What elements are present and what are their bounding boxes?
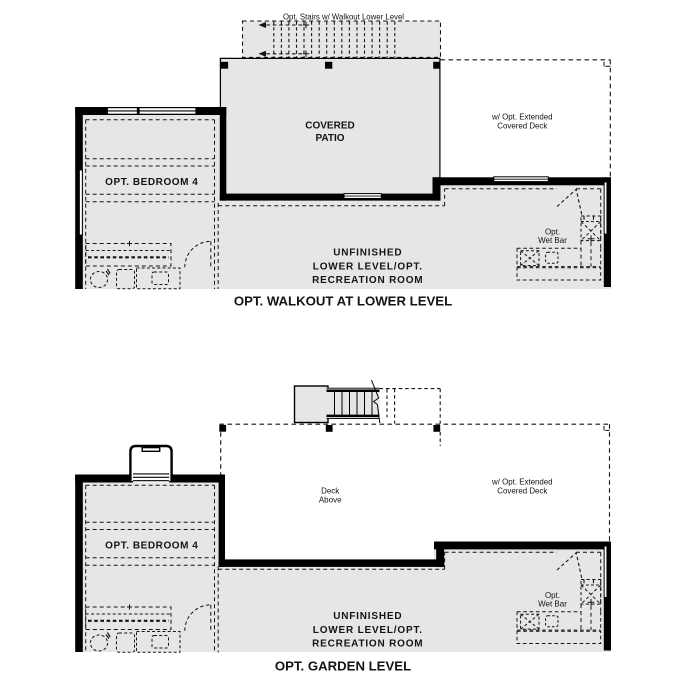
svg-text:LOWER LEVEL/OPT.: LOWER LEVEL/OPT. bbox=[313, 625, 423, 636]
svg-text:Opt.: Opt. bbox=[545, 591, 560, 600]
svg-text:Wet Bar: Wet Bar bbox=[538, 236, 567, 245]
svg-text:RECREATION ROOM: RECREATION ROOM bbox=[312, 275, 423, 286]
svg-text:UNFINISHED: UNFINISHED bbox=[333, 248, 402, 259]
svg-text:Deck: Deck bbox=[321, 486, 340, 495]
svg-text:OPT. BEDROOM 4: OPT. BEDROOM 4 bbox=[105, 177, 198, 188]
svg-text:UNFINISHED: UNFINISHED bbox=[333, 611, 402, 622]
svg-text:Opt.: Opt. bbox=[545, 227, 560, 236]
svg-text:LOWER LEVEL/OPT.: LOWER LEVEL/OPT. bbox=[313, 261, 423, 272]
svg-text:RECREATION ROOM: RECREATION ROOM bbox=[312, 638, 423, 649]
svg-text:PATIO: PATIO bbox=[315, 133, 344, 144]
svg-text:Covered Deck: Covered Deck bbox=[497, 487, 547, 496]
svg-text:OPT. WALKOUT AT LOWER LEVEL: OPT. WALKOUT AT LOWER LEVEL bbox=[234, 294, 452, 309]
svg-text:Wet Bar: Wet Bar bbox=[538, 600, 567, 609]
svg-text:Above: Above bbox=[319, 496, 342, 505]
svg-text:OPT. GARDEN LEVEL: OPT. GARDEN LEVEL bbox=[275, 659, 411, 674]
svg-text:OPT. BEDROOM 4: OPT. BEDROOM 4 bbox=[105, 540, 198, 551]
svg-text:Covered Deck: Covered Deck bbox=[497, 122, 547, 131]
svg-text:Opt. Stairs w/ Walkout Lower L: Opt. Stairs w/ Walkout Lower Level bbox=[283, 12, 404, 21]
svg-text:w/ Opt. Extended: w/ Opt. Extended bbox=[491, 113, 553, 122]
svg-text:COVERED: COVERED bbox=[305, 121, 354, 132]
svg-text:w/ Opt. Extended: w/ Opt. Extended bbox=[491, 478, 553, 487]
